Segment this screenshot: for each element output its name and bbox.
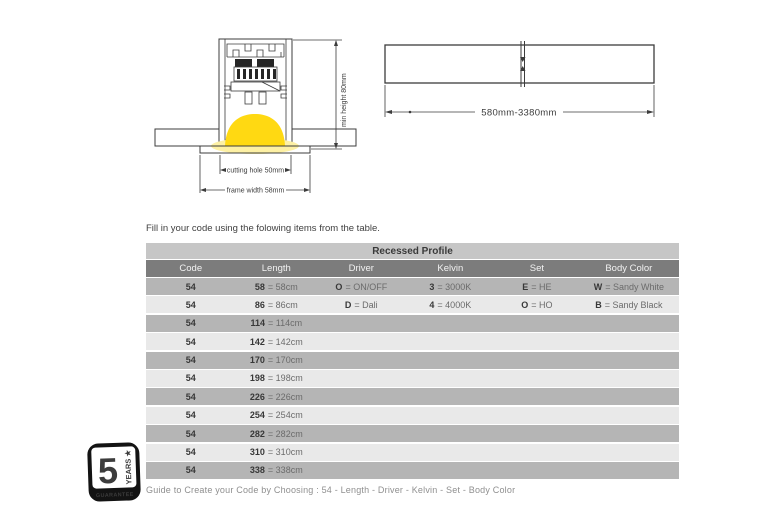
table-cell: 3= 3000K — [406, 278, 496, 295]
table-cell — [495, 352, 579, 369]
table-cell: D= Dali — [317, 296, 405, 313]
table-cell — [579, 444, 679, 461]
table-cell: 58= 58cm — [236, 278, 318, 295]
column-header-code: Code — [146, 260, 236, 277]
table-cell — [579, 407, 679, 424]
table-cell — [317, 352, 405, 369]
table-cell — [579, 370, 679, 387]
column-header-length: Length — [236, 260, 318, 277]
table-cell: E= HE — [495, 278, 579, 295]
frame-width-dimension-label: frame width 58mm — [227, 188, 285, 195]
column-header-driver: Driver — [317, 260, 405, 277]
table-cell: 54 — [146, 462, 236, 479]
table-cell: 226= 226cm — [236, 388, 318, 405]
table-cell — [406, 407, 496, 424]
table-cell — [317, 444, 405, 461]
min-height-dimension: min height 80mm — [293, 40, 348, 149]
table-cell — [406, 315, 496, 332]
heatsink-fins — [227, 44, 284, 57]
table-cell — [579, 462, 679, 479]
table-row: 54226= 226cm — [146, 388, 679, 405]
table-row: 54254= 254cm — [146, 407, 679, 424]
table-cell: 4= 4000K — [406, 296, 496, 313]
table-cell: O= HO — [495, 296, 579, 313]
table-cell — [406, 333, 496, 350]
table-cell: 54 — [146, 333, 236, 350]
table-row: 54338= 338cm — [146, 462, 679, 479]
table-cell — [406, 425, 496, 442]
guarantee-badge: 5 YEARS ★ GUARANTEE — [86, 441, 142, 503]
table-cell: 54 — [146, 278, 236, 295]
length-range-label: 580mm-3380mm — [481, 108, 556, 119]
table-cell: 282= 282cm — [236, 425, 318, 442]
table-cell: 254= 254cm — [236, 407, 318, 424]
length-dimension: 580mm-3380mm — [385, 85, 654, 119]
profile-joint — [520, 41, 526, 87]
table-cell: 54 — [146, 296, 236, 313]
table-cell — [317, 370, 405, 387]
footer-guide-text: Guide to Create your Code by Choosing : … — [146, 485, 515, 495]
table-cell — [495, 315, 579, 332]
table-cell — [406, 444, 496, 461]
table-cell — [495, 444, 579, 461]
table-cell — [495, 333, 579, 350]
table-cell: 198= 198cm — [236, 370, 318, 387]
table-row: 54170= 170cm — [146, 352, 679, 369]
table-cell: 54 — [146, 407, 236, 424]
column-header-body-color: Body Color — [579, 260, 679, 277]
table-cell — [495, 370, 579, 387]
table-cell — [495, 407, 579, 424]
catalog-page: min height 80mm cutting hole 50mm frame … — [0, 0, 764, 517]
table-cell — [579, 352, 679, 369]
table-cell: W= Sandy White — [579, 278, 679, 295]
badge-years-label: YEARS ★ — [123, 448, 133, 484]
table-cell — [495, 425, 579, 442]
cutting-hole-dimension-label: cutting hole 50mm — [227, 168, 284, 175]
badge-number: 5 — [97, 450, 118, 492]
min-height-dimension-label: min height 80mm — [341, 73, 348, 127]
table-cell — [579, 425, 679, 442]
table-row: 54282= 282cm — [146, 425, 679, 442]
table-cell — [406, 370, 496, 387]
table-cell — [579, 388, 679, 405]
table-cell — [406, 462, 496, 479]
intro-text: Fill in your code using the folowing ite… — [146, 223, 380, 234]
ceiling-left — [155, 129, 219, 146]
table-cell — [317, 333, 405, 350]
table-cell: 54 — [146, 370, 236, 387]
table-cell: 142= 142cm — [236, 333, 318, 350]
table-row: 54198= 198cm — [146, 370, 679, 387]
table-cell — [406, 388, 496, 405]
table-cell — [406, 352, 496, 369]
table-cell: 86= 86cm — [236, 296, 318, 313]
table-row: 5458= 58cmO= ON/OFF3= 3000KE= HEW= Sandy… — [146, 278, 679, 295]
table-cell: 54 — [146, 352, 236, 369]
ceiling-right — [292, 129, 356, 146]
table-cell — [317, 425, 405, 442]
table-cell: 114= 114cm — [236, 315, 318, 332]
table-cell: 54 — [146, 425, 236, 442]
table-cell: O= ON/OFF — [317, 278, 405, 295]
table-cell: 54 — [146, 388, 236, 405]
profile-length-body — [385, 45, 654, 83]
led-module — [224, 59, 287, 104]
table-cell — [317, 462, 405, 479]
column-header-kelvin: Kelvin — [406, 260, 496, 277]
light-beam — [225, 114, 285, 146]
table-cell: 54 — [146, 444, 236, 461]
table-cell — [317, 388, 405, 405]
code-table: Recessed Profile Code Length Driver Kelv… — [146, 243, 679, 480]
table-row: 5486= 86cmD= Dali4= 4000KO= HOB= Sandy B… — [146, 296, 679, 313]
table-cell — [317, 315, 405, 332]
table-row: 54310= 310cm — [146, 444, 679, 461]
table-header-row: Code Length Driver Kelvin Set Body Color — [146, 260, 679, 277]
table-cell: 310= 310cm — [236, 444, 318, 461]
table-body: 5458= 58cmO= ON/OFF3= 3000KE= HEW= Sandy… — [146, 278, 679, 479]
profile-cross-section-drawing: min height 80mm cutting hole 50mm frame … — [150, 30, 365, 205]
table-cell — [495, 388, 579, 405]
table-row: 54114= 114cm — [146, 315, 679, 332]
table-cell: B= Sandy Black — [579, 296, 679, 313]
cutting-hole-dimension: cutting hole 50mm — [220, 155, 291, 175]
table-cell: 338= 338cm — [236, 462, 318, 479]
table-cell — [495, 462, 579, 479]
profile-length-drawing: 580mm-3380mm — [375, 33, 665, 125]
table-cell — [579, 333, 679, 350]
table-row: 54142= 142cm — [146, 333, 679, 350]
table-cell: 54 — [146, 315, 236, 332]
table-cell — [579, 315, 679, 332]
table-cell — [317, 407, 405, 424]
table-cell: 170= 170cm — [236, 352, 318, 369]
column-header-set: Set — [495, 260, 579, 277]
table-title: Recessed Profile — [146, 243, 679, 259]
